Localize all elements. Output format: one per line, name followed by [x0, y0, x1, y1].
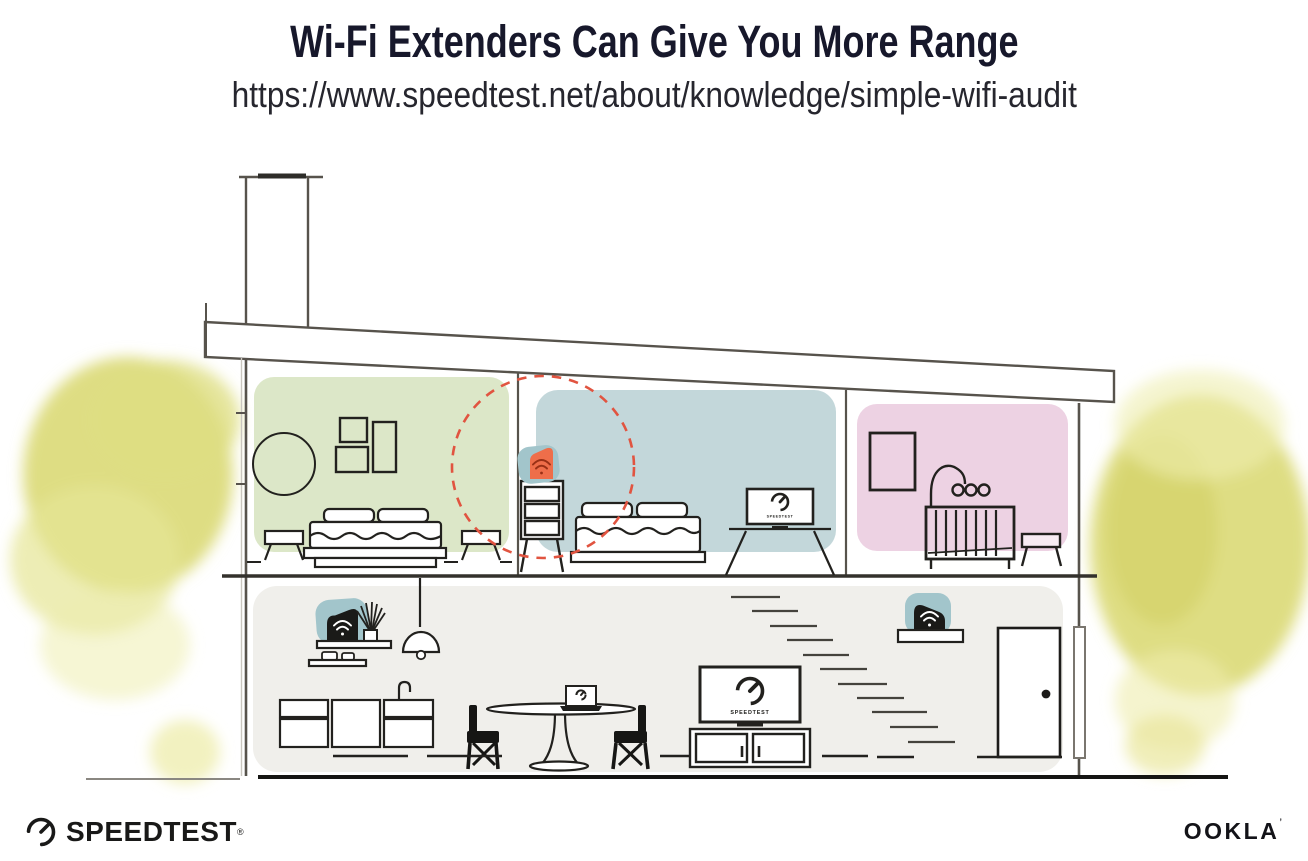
front-door	[998, 628, 1060, 757]
bed-blue	[571, 503, 705, 562]
speedtest-logo: SPEEDTEST®	[24, 815, 244, 849]
registered-mark: ®	[237, 827, 244, 837]
foliage-blob	[1115, 370, 1285, 480]
wall-shelf-upper	[317, 641, 391, 648]
foliage-right	[1090, 370, 1308, 775]
speedtest-gauge-icon	[24, 815, 58, 849]
header: Wi-Fi Extenders Can Give You More Range …	[0, 16, 1308, 116]
tv-cabinet	[690, 729, 810, 767]
page-url: https://www.speedtest.net/about/knowledg…	[231, 74, 1076, 116]
bed-green	[304, 509, 446, 567]
nursery-pink-background	[857, 404, 1068, 551]
trademark-tick: ’	[1279, 816, 1282, 830]
page-title: Wi-Fi Extenders Can Give You More Range	[290, 16, 1019, 68]
laptop	[560, 686, 602, 711]
foliage-blob	[90, 360, 240, 480]
wall-shelf-lower	[309, 660, 366, 666]
living-room-tv: SPEEDTEST	[690, 667, 810, 767]
page: { "header": { "title": "Wi-Fi Extenders …	[0, 0, 1308, 861]
door-knob	[1042, 690, 1051, 699]
foliage-left	[10, 357, 240, 784]
wifi-extender-orange-upstairs	[516, 444, 561, 485]
cup	[322, 652, 337, 660]
wall-shelf	[898, 630, 963, 642]
ookla-wordmark: OOKLA	[1184, 818, 1280, 844]
speedtest-wordmark: SPEEDTEST	[66, 816, 237, 848]
house-illustration: SPEEDTEST	[0, 0, 1308, 861]
tv-screen-label: SPEEDTEST	[730, 710, 769, 716]
ookla-logo: OOKLA’	[1184, 816, 1282, 845]
chimney	[239, 174, 323, 329]
foliage-blob	[150, 720, 220, 784]
tv-screen-label: SPEEDTEST	[767, 515, 794, 519]
door-side-trim	[1074, 627, 1085, 758]
foliage-blob	[40, 590, 190, 700]
foliage-blob	[1125, 715, 1205, 775]
